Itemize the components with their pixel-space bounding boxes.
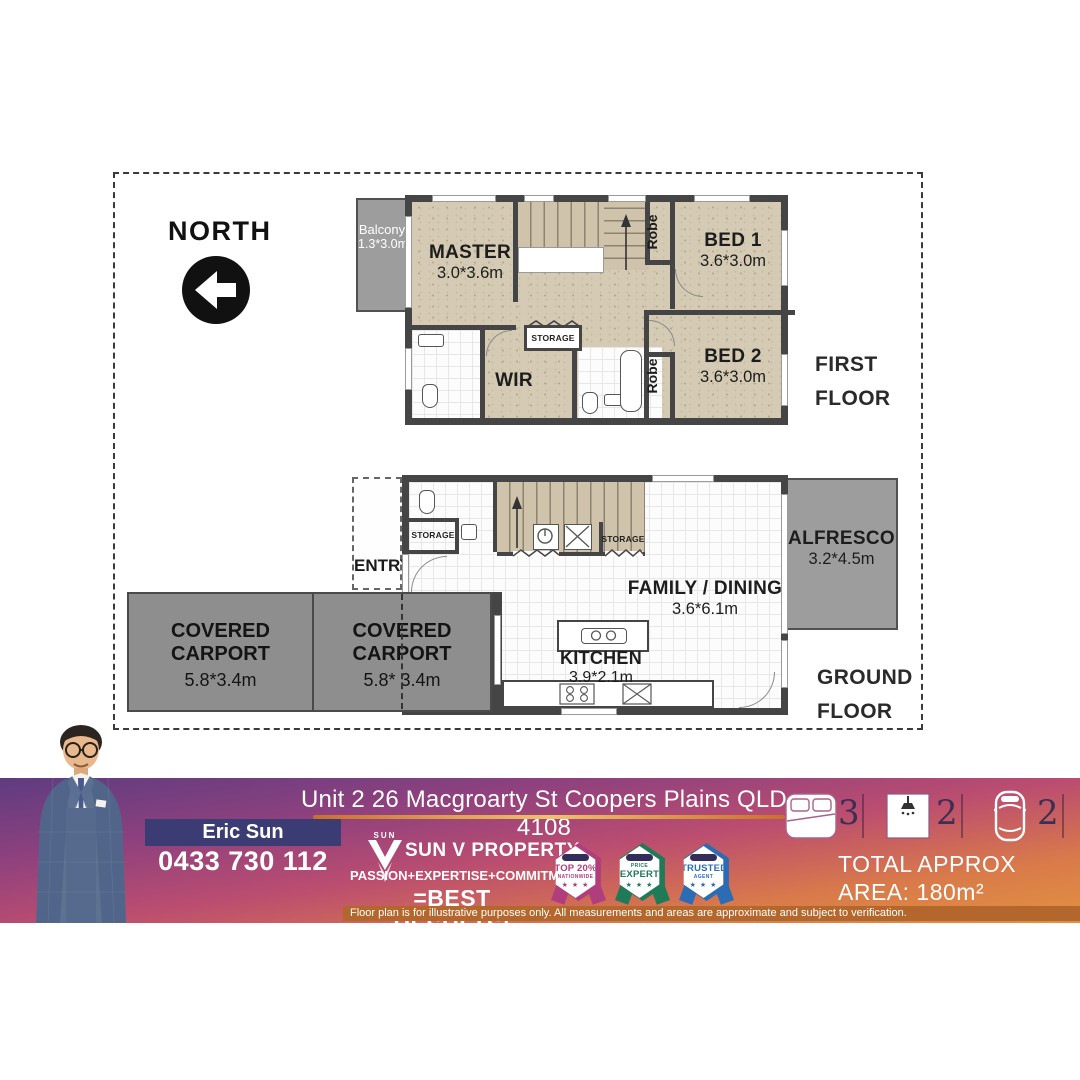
stat-divider [862, 794, 864, 838]
award-badges: TOP 20% NATIONWIDE ★ ★ ★ PRICE EXPERT ★ … [550, 843, 735, 905]
family-room-label: FAMILY / DINING 3.6*6.1m [621, 578, 789, 619]
address-underline [313, 815, 785, 819]
agent-photo [8, 712, 154, 923]
wir-label: WIR [484, 370, 544, 392]
window [694, 195, 750, 202]
shower-icon [886, 793, 930, 839]
ratemyagent-pill [690, 854, 717, 861]
gf-storage1-label: STORAGE [411, 530, 455, 540]
badge-price-expert: PRICE EXPERT ★ ★ ★ [614, 843, 671, 905]
stairs-up-arrow-icon [618, 214, 634, 272]
ff-storage-closet: STORAGE [524, 325, 582, 351]
wall [412, 325, 516, 330]
wall [572, 342, 577, 418]
balcony-dims: 1.3*3.0m [358, 237, 406, 251]
ff-stairs-flight [518, 202, 604, 247]
wall [670, 202, 675, 264]
wall [644, 310, 795, 315]
wall [409, 550, 459, 554]
door-arc [739, 672, 775, 708]
disclaimer-strip: Floor plan is for illustrative purposes … [343, 906, 1080, 921]
car-icon [992, 788, 1028, 844]
sun-logo-word: SUN [362, 831, 408, 840]
bathtub [620, 350, 642, 412]
carport1-zone: COVERED CARPORT 5.8*3.4m [127, 592, 314, 712]
wall [493, 482, 497, 552]
stat-divider [1062, 794, 1064, 838]
badge-top20: TOP 20% NATIONWIDE ★ ★ ★ [550, 843, 607, 905]
master-room-label: MASTER 3.0*3.6m [420, 242, 520, 283]
ground-floor-title: GROUND FLOOR [817, 661, 913, 728]
front-door-arc [411, 556, 447, 592]
window [781, 640, 788, 688]
alfresco-zone: ALFRESCO 3.2*4.5m [786, 478, 898, 630]
door-arc [675, 269, 703, 297]
toilet [422, 384, 438, 408]
kitchen-room-label: KITCHEN 3.9*2.1m [543, 648, 659, 687]
balcony-door [405, 216, 412, 308]
window [405, 348, 412, 390]
agent-phone: 0433 730 112 [145, 846, 341, 877]
stat-divider [961, 794, 963, 838]
robe2-label: Robe [644, 354, 660, 398]
laundry-sink [533, 524, 559, 550]
baths-count: 2 [936, 793, 958, 833]
wall [409, 518, 457, 522]
bifold-door-icon [605, 548, 643, 558]
window [494, 615, 501, 685]
ratemyagent-pill [626, 854, 653, 861]
total-area-line1: TOTAL APPROX [838, 851, 1016, 878]
bifold-door-icon [527, 320, 579, 328]
cooktop [581, 628, 627, 644]
badge-trusted-agent: TRUSTED AGENT ★ ★ ★ [678, 843, 735, 905]
entry-label: ENTRY [354, 556, 406, 576]
stair-void [518, 247, 604, 273]
wall [455, 518, 459, 554]
wall [670, 352, 675, 418]
toilet [419, 490, 435, 514]
north-arrow-icon [182, 256, 250, 324]
window [652, 475, 714, 482]
first-floor-title: FIRST FLOOR [815, 348, 891, 415]
toilet [582, 392, 598, 414]
balcony-zone: Balcony 1.3*3.0m [356, 198, 408, 312]
alfresco-dims: 3.2*4.5m [788, 550, 895, 569]
bed1-room-label: BED 1 3.6*3.0m [678, 230, 788, 271]
cars-count: 2 [1037, 793, 1059, 833]
first-floor-building: STORAGE MASTER 3.0*3.6m BED 1 3.6*3.0m B [405, 195, 788, 425]
window [608, 195, 646, 202]
beds-count: 3 [838, 793, 860, 833]
gf-storage2-label: STORAGE [601, 534, 645, 544]
carport2-zone: COVERED CARPORT 5.8* 3.4m [314, 592, 492, 712]
bed2-room-label: BED 2 3.6*3.0m [678, 346, 788, 387]
door-arc [486, 330, 512, 356]
alfresco-label: ALFRESCO [788, 528, 895, 550]
window [524, 195, 554, 202]
carport-boundary-dash [401, 594, 403, 709]
robe1-label: Robe [644, 210, 660, 254]
stairs-up-arrow-icon [509, 496, 525, 550]
window [561, 708, 617, 715]
vanity-sink [418, 334, 444, 347]
floorplan-poster: NORTH Balcony 1.3*3.0m [0, 0, 1080, 1080]
ratemyagent-pill [562, 854, 589, 861]
small-sink [461, 524, 477, 540]
house-side-wall [492, 592, 502, 715]
north-label: NORTH [168, 216, 268, 247]
balcony-label: Balcony [358, 222, 406, 237]
bed-icon [785, 793, 837, 839]
agent-name-badge: Eric Sun [145, 819, 341, 846]
brand-tagline: PASSION+EXPERTISE+COMMITMENT [350, 868, 554, 883]
washer [564, 524, 592, 550]
window [432, 195, 496, 202]
door-arc [649, 320, 675, 346]
ff-storage-label: STORAGE [527, 333, 579, 343]
total-area-line2: AREA: 180m² [838, 879, 984, 906]
